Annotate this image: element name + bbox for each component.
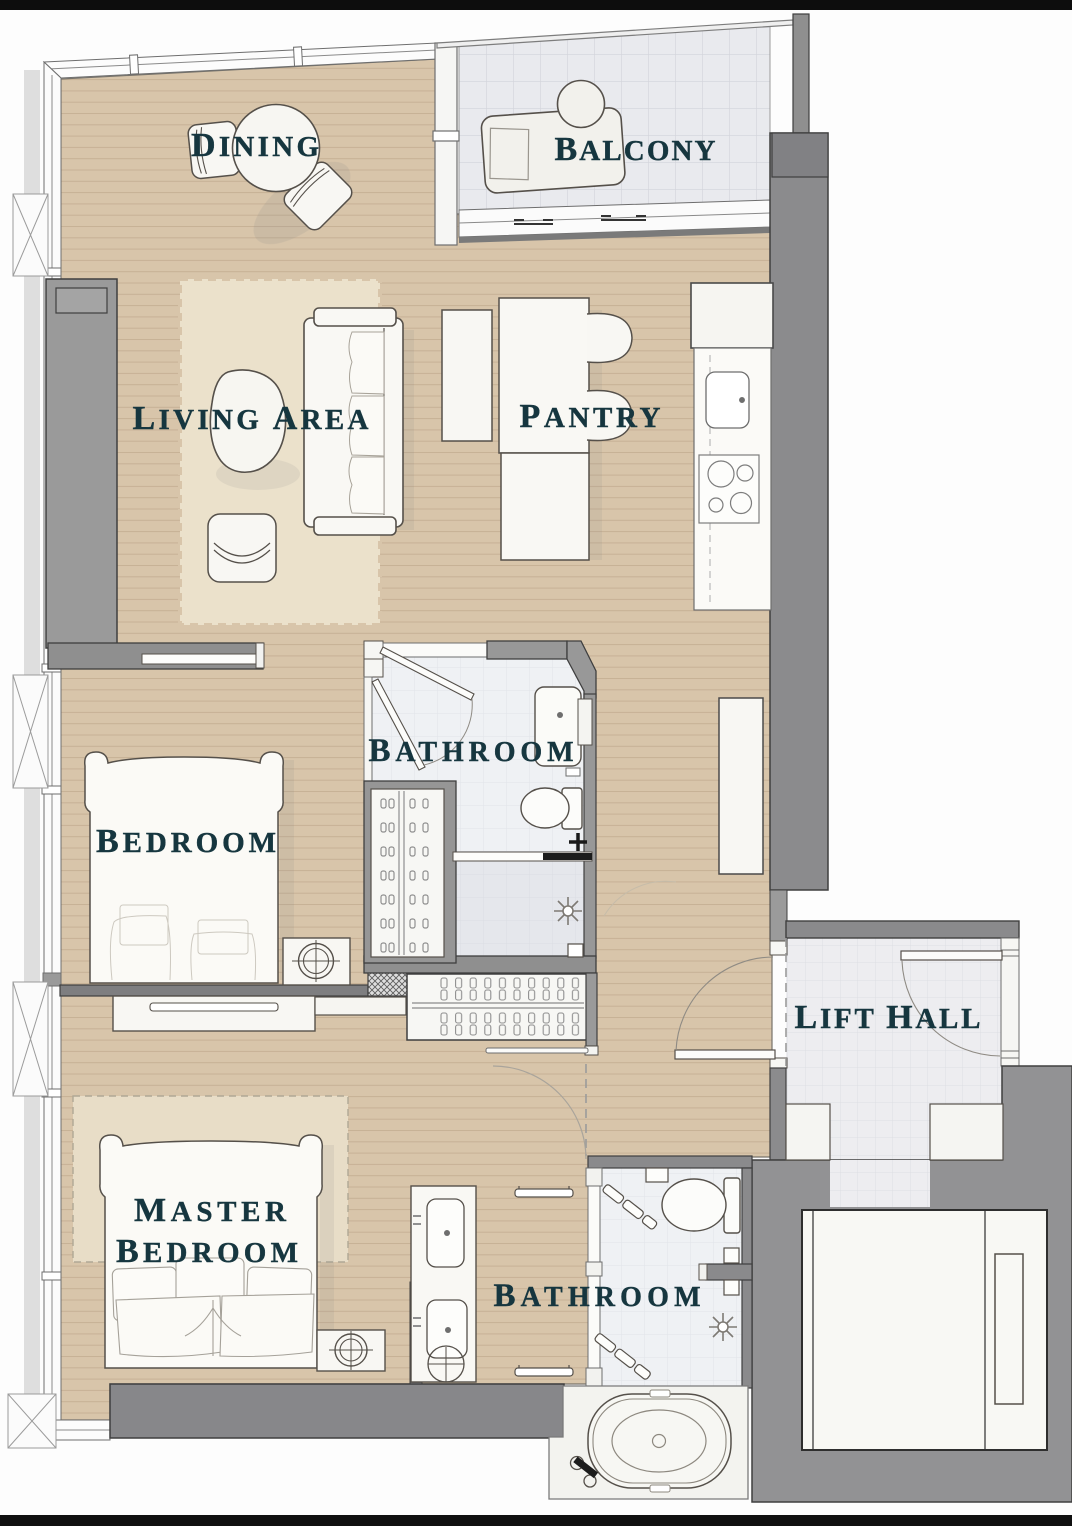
svg-text:DINING: DINING bbox=[191, 127, 323, 164]
svg-text:BEDROOM: BEDROOM bbox=[116, 1233, 302, 1270]
svg-text:LIVING AREA: LIVING AREA bbox=[133, 400, 374, 437]
svg-text:BATHROOM: BATHROOM bbox=[494, 1278, 705, 1314]
svg-text:BATHROOM: BATHROOM bbox=[369, 733, 578, 769]
svg-text:LIFT HALL: LIFT HALL bbox=[795, 999, 986, 1036]
svg-text:PANTRY: PANTRY bbox=[520, 398, 665, 435]
svg-text:BEDROOM: BEDROOM bbox=[96, 823, 280, 860]
svg-text:BALCONY: BALCONY bbox=[555, 131, 720, 168]
svg-text:MASTER: MASTER bbox=[134, 1192, 290, 1229]
